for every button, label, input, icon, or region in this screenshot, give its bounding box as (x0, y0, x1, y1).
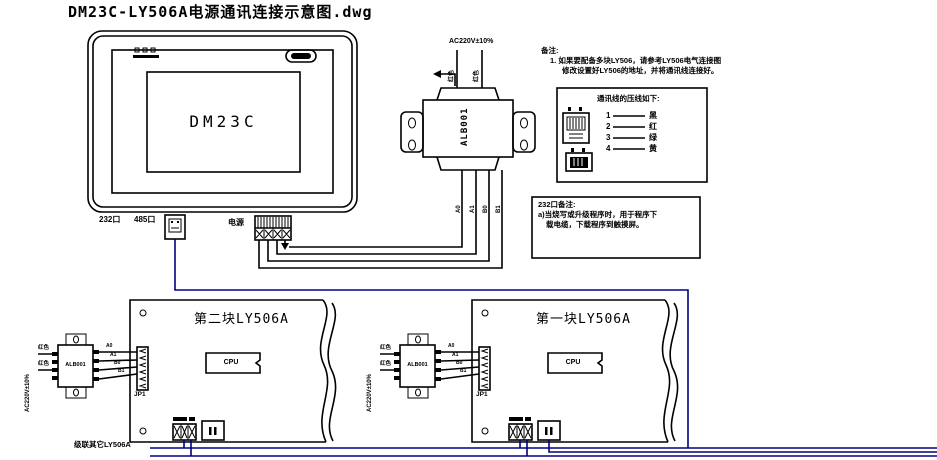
board2-transformer-label: ALB001 (58, 363, 93, 369)
pinout-leader-lines (613, 116, 645, 149)
rj11-plug-icon (563, 107, 589, 143)
board2-cpu-label: CPU (206, 359, 256, 366)
board1-cpu-label: CPU (548, 359, 598, 366)
pinout-color-3: 绿 (649, 134, 657, 142)
pinout-color-4: 黄 (649, 145, 657, 153)
board2-jp1-label: JP1 (134, 392, 146, 399)
board2-red-wire-1: 红色 (38, 346, 49, 352)
port-232-label: 232口 (99, 216, 120, 224)
power-label: 电源 (228, 219, 244, 227)
board2-title: 第二块LY506A (194, 313, 289, 326)
board1-title: 第一块LY506A (536, 313, 631, 326)
main-transformer-label: ALB001 (461, 107, 470, 146)
board1-pin-b1: B1 (460, 369, 466, 374)
brand-badge-icon (286, 50, 316, 62)
pinout-num-1: 1 (606, 112, 610, 120)
pin-label-b0: B0 (483, 205, 489, 213)
remarks-heading: 备注: (541, 47, 559, 55)
pin-label-a1: A1 (470, 205, 476, 213)
pinout-color-1: 黑 (649, 112, 657, 120)
board1-pin-a1: A1 (452, 353, 458, 358)
board2-jp1-connector (137, 347, 148, 390)
remarks-line1: 1. 如果要配备多块LY506，请参考LY506电气连接图 (550, 57, 721, 65)
board2-voltage-label: AC220V±10% (25, 374, 31, 412)
board2-pin-a0: A0 (106, 344, 112, 349)
board1-bottom-terminal (509, 417, 532, 440)
board2-bottom-terminal (173, 417, 196, 440)
red-wire-label-2: 红色 (474, 70, 480, 82)
pinout-num-2: 2 (606, 123, 610, 131)
note232-line3: 载电缆，下载程序到触摸屏。 (546, 221, 644, 229)
pinout-num-4: 4 (606, 145, 610, 153)
board2-red-wire-2: 红色 (38, 362, 49, 368)
rs232-connector-icon (165, 215, 185, 239)
pin-label-b1: B1 (496, 205, 502, 213)
board1-jp1-label: JP1 (476, 392, 488, 399)
rj11-jack-icon (566, 148, 592, 171)
board1-jp1-connector (479, 347, 490, 390)
cad-drawing-canvas: DM23C-LY506A电源通讯连接示意图.dwg DM23C 232口 485… (0, 0, 937, 460)
board1-pin-a0: A0 (448, 344, 454, 349)
pin-label-a0: A0 (456, 205, 462, 213)
cascade-label: 级联其它LY506A (74, 441, 131, 449)
board2-comm-jack (202, 421, 224, 440)
panel-screen-label: DM23C (147, 114, 300, 130)
board1-red-wire-1: 红色 (380, 346, 391, 352)
port-485-label: 485口 (134, 216, 155, 224)
ac-voltage-label: AC220V±10% (449, 38, 493, 45)
secondary-power-wires (259, 170, 502, 268)
board2-pin-b1: B1 (118, 369, 124, 374)
board1-transformer-label: ALB001 (400, 363, 435, 369)
board2-pin-b0: B0 (114, 361, 120, 366)
remarks-line2: 修改设置好LY506的地址，并将通讯线连接好。 (562, 67, 718, 75)
board2-pin-a1: A1 (110, 353, 116, 358)
pinout-num-3: 3 (606, 134, 610, 142)
power-terminal-block (255, 216, 291, 240)
board1-voltage-label: AC220V±10% (367, 374, 373, 412)
pinout-title: 通讯线的压线如下: (597, 95, 660, 103)
board1-red-wire-2: 红色 (380, 362, 391, 368)
note232-line1: 232口备注: (538, 201, 576, 209)
pinout-color-2: 红 (649, 123, 657, 131)
drawing-title: DM23C-LY506A电源通讯连接示意图.dwg (68, 5, 373, 20)
note232-line2: a)当烧写或升级程序时，用于程序下 (538, 211, 657, 219)
comm-wires (150, 239, 937, 456)
board1-comm-jack (538, 421, 560, 440)
red-wire-label-1: 红色 (449, 70, 455, 82)
board1-pin-b0: B0 (456, 361, 462, 366)
